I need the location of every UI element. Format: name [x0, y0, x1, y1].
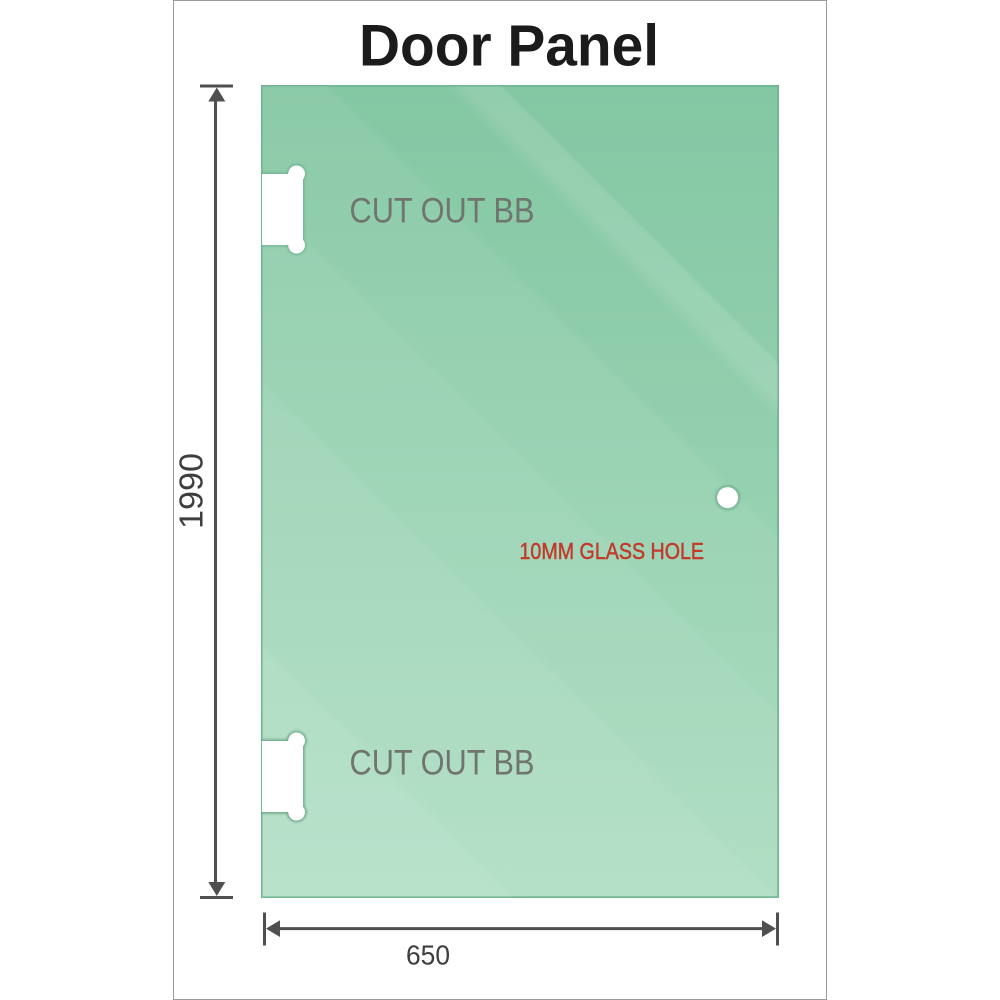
svg-text:CUT OUT BB: CUT OUT BB — [350, 192, 535, 231]
svg-text:10MM GLASS HOLE: 10MM GLASS HOLE — [520, 538, 705, 564]
svg-text:Door Panel: Door Panel — [359, 14, 659, 79]
svg-text:650: 650 — [406, 940, 450, 971]
svg-text:1990: 1990 — [172, 453, 209, 529]
svg-text:CUT OUT BB: CUT OUT BB — [350, 744, 535, 783]
